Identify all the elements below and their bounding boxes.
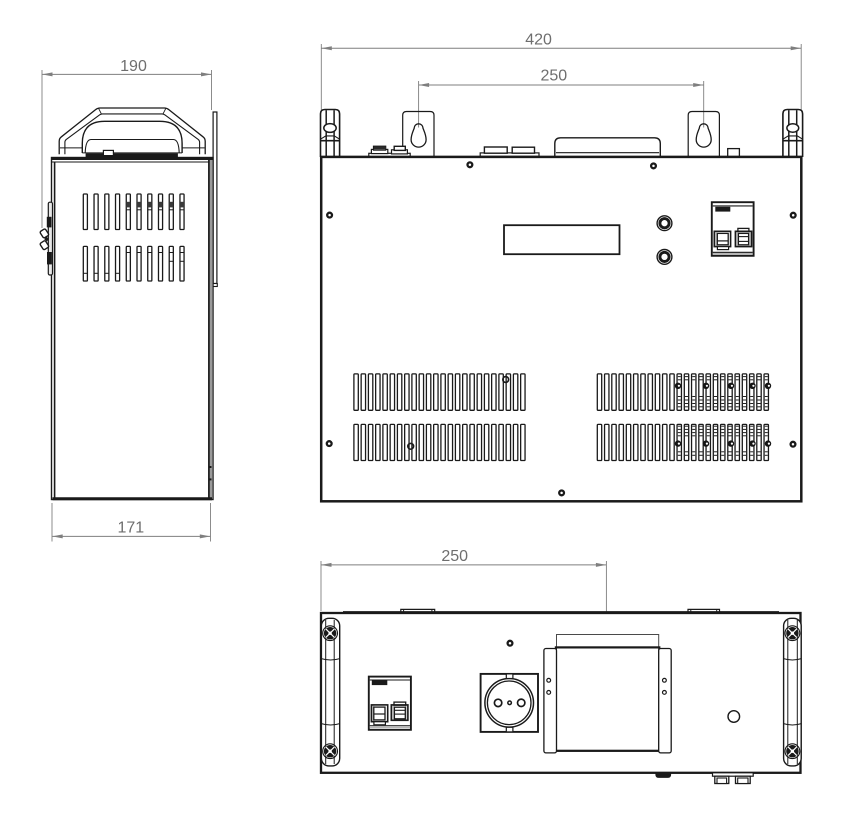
- svg-text:420: 420: [525, 32, 552, 49]
- svg-text:171: 171: [117, 520, 144, 537]
- svg-text:250: 250: [540, 68, 567, 85]
- svg-text:190: 190: [120, 58, 147, 75]
- svg-text:250: 250: [441, 548, 468, 565]
